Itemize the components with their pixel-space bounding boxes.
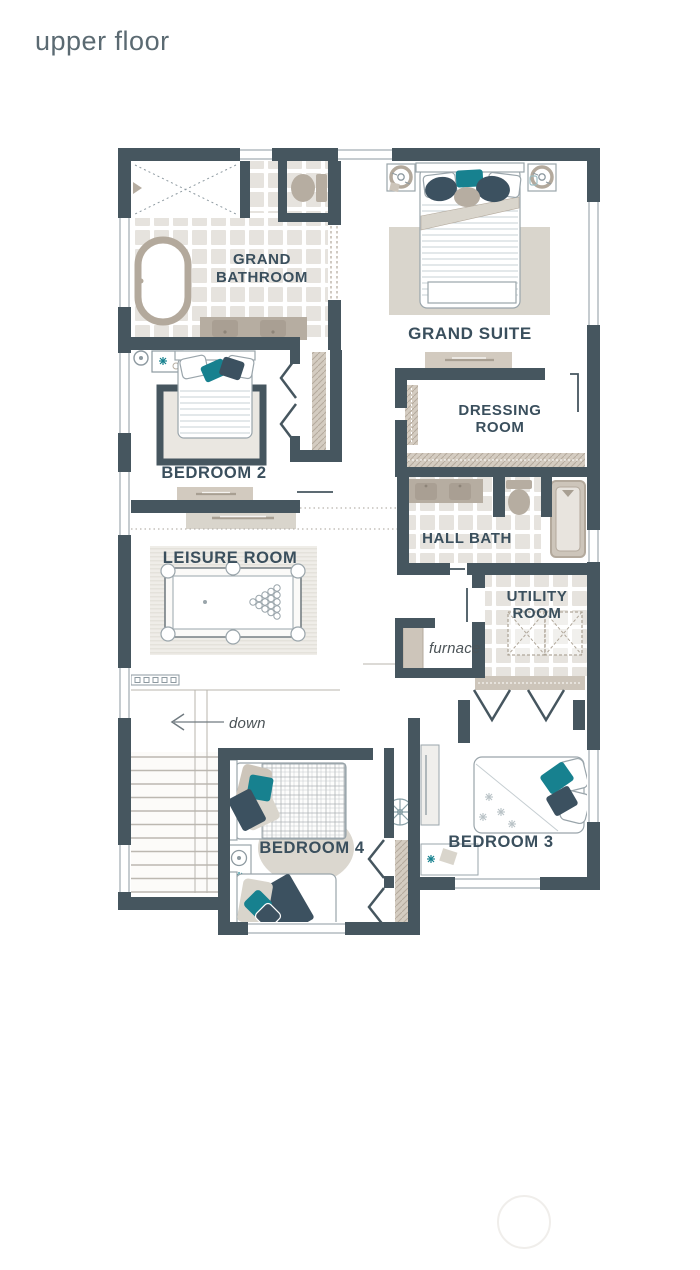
plant-icon (427, 855, 435, 863)
door-leaf (570, 374, 578, 412)
railing (131, 675, 179, 685)
bathtub (138, 240, 188, 322)
tub-faucet-icon (139, 279, 144, 284)
pool-table (161, 561, 305, 644)
bedroom-3 (421, 745, 591, 875)
room-label-bedroom-3: BEDROOM 3 (448, 833, 553, 851)
room-label-bedroom-2: BEDROOM 2 (161, 464, 266, 482)
room-label-utility-room-line2: ROOM (512, 605, 561, 622)
bifold-door (369, 888, 384, 926)
room-label-leisure-room: LEISURE ROOM (163, 549, 298, 567)
room-label-utility-room-line1: UTILITY (507, 588, 568, 605)
room-label-dressing-room-line1: DRESSING (458, 402, 541, 419)
room-label-grand-bathroom-line1: GRAND (233, 251, 291, 268)
bed-top (227, 760, 346, 840)
annotation-furnace: furnace (429, 640, 480, 657)
bed-bench (428, 282, 516, 303)
double-vanity (200, 317, 307, 340)
room-label-grand-bathroom-line2: BATHROOM (216, 269, 308, 286)
closet-rod (312, 352, 326, 450)
furnace-closet (363, 626, 423, 673)
linen-shelf (475, 676, 585, 690)
dresser (425, 352, 512, 368)
bifold-door (369, 840, 384, 878)
nightstand-right (528, 164, 556, 191)
bed (474, 757, 591, 833)
double-vanity (409, 479, 483, 503)
furnace-unit (403, 626, 423, 673)
shower (131, 161, 240, 218)
stair-treads (131, 752, 218, 893)
toilet (291, 174, 327, 202)
watermark-circle (498, 1196, 550, 1248)
room-label-hall-bath: HALL BATH (422, 530, 512, 547)
room-label-bedroom-4: BEDROOM 4 (259, 839, 365, 857)
bed (175, 351, 255, 438)
lamp-icon (532, 167, 552, 187)
room-label-dressing-room-line2: ROOM (475, 419, 524, 436)
dresser (177, 487, 253, 502)
closet-door (528, 690, 564, 720)
room-label-grand-suite: GRAND SUITE (408, 324, 532, 343)
annotation-down: down (229, 715, 266, 732)
closet-door (474, 690, 510, 720)
nightstand-left (387, 164, 415, 192)
floor-plan: GRAND BATHROOM GRAND SUITE BEDROOM 2 DRE… (0, 0, 700, 1270)
speaker-icon (134, 351, 148, 365)
closet-rod (395, 840, 408, 933)
down-arrow-icon (172, 714, 224, 730)
tub-shower (551, 481, 585, 557)
dresser (421, 745, 439, 825)
cue-ball (203, 600, 207, 604)
